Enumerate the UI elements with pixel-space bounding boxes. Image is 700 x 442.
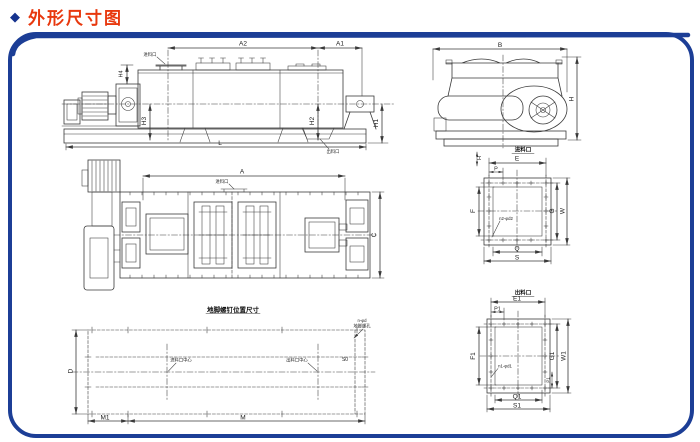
- inlet-port-label: 进料口: [144, 51, 157, 58]
- dim-q1: Q1: [513, 394, 522, 401]
- dim-l: L: [218, 140, 222, 147]
- inlet-flange-title: 进料口: [515, 146, 532, 154]
- dim-flange-h: H: [477, 156, 483, 160]
- dim-m1: M1: [100, 415, 109, 422]
- dim-w: W: [560, 207, 567, 214]
- outlet-port-label: 出料口: [327, 148, 340, 155]
- dim-h: H: [569, 96, 576, 101]
- anchor-holes-callout-1: n-φd: [358, 318, 368, 323]
- drawing-canvas: A2 A1 L H1 H2 H3 H4 进料口 出料口: [0, 0, 700, 442]
- anchor-holes-callout-2: 地脚螺孔: [353, 323, 371, 330]
- dim-a1: A1: [336, 41, 344, 48]
- dim-h4: H4: [119, 70, 125, 77]
- dim-a: A: [240, 169, 245, 176]
- outlet-center-label: 出料口中心: [286, 357, 308, 364]
- dim-m: M: [240, 415, 245, 422]
- dim-f: F: [470, 209, 477, 213]
- dim-a2: A2: [239, 41, 247, 48]
- dim-p: P: [494, 167, 498, 173]
- inlet-center-label: 进料口中心: [170, 357, 192, 364]
- dim-e: E: [515, 156, 520, 163]
- dim-g: G: [549, 208, 556, 213]
- dim-g1: G1: [549, 351, 556, 360]
- dim-b: B: [498, 42, 502, 49]
- dim-f1: F1: [470, 352, 477, 360]
- dim-p1-pitch: P1: [546, 377, 551, 383]
- page-frame: [10, 34, 692, 436]
- dim-h1: H1: [373, 118, 380, 127]
- outlet-flange-holes-callout: n1-φd1: [498, 364, 512, 369]
- dim-s0: S0: [342, 357, 348, 363]
- inlet-flange-holes-callout: n2-φd2: [499, 216, 513, 221]
- dim-w1: W1: [561, 351, 568, 361]
- plan-inlet-label: 进料口: [216, 178, 229, 185]
- dim-q: Q: [514, 246, 519, 253]
- dim-s1: S1: [513, 403, 521, 410]
- dim-p1: P1: [494, 307, 501, 313]
- dim-h2: H2: [309, 116, 316, 125]
- dim-s: S: [515, 255, 520, 262]
- foundation-title: 地脚螺钉位置尺寸: [207, 305, 260, 314]
- dim-e1: E1: [513, 296, 521, 303]
- dim-c: C: [371, 232, 378, 237]
- dim-h3: H3: [141, 116, 148, 125]
- drawing-page: ◆ 外形尺寸图: [0, 0, 700, 442]
- dim-d: D: [68, 368, 75, 373]
